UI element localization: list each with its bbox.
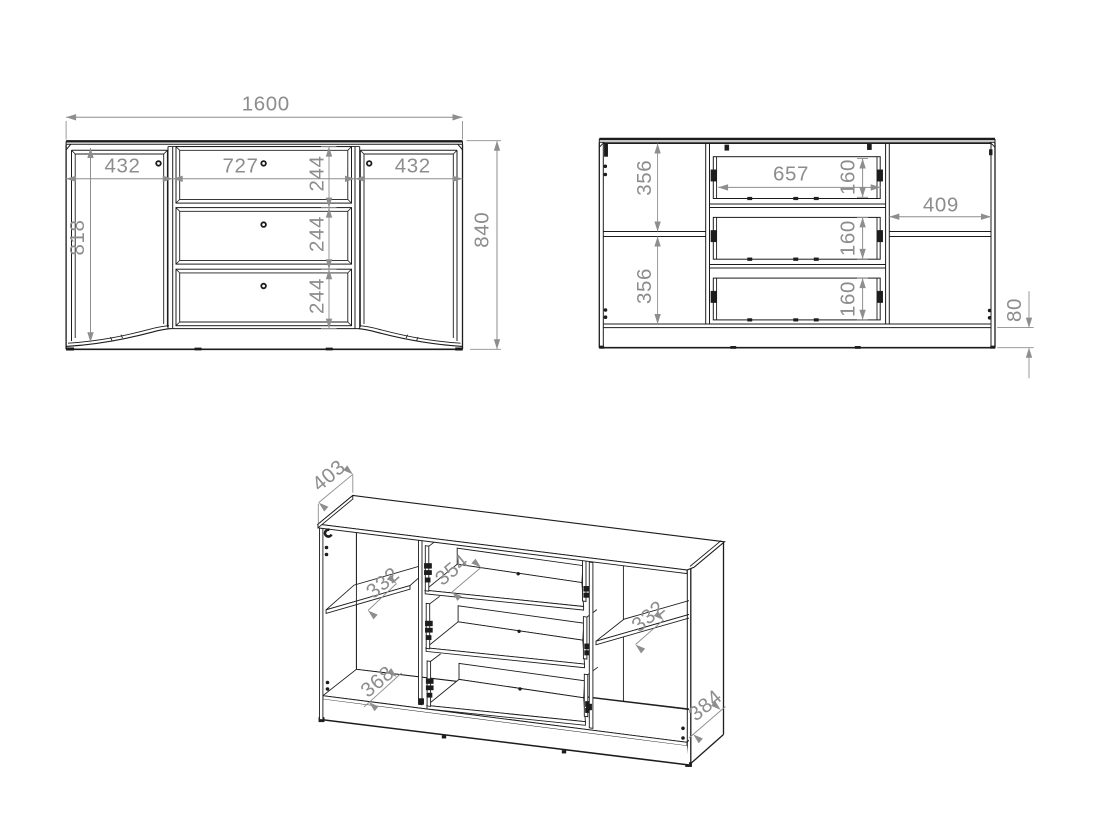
svg-text:244: 244 <box>305 216 328 252</box>
svg-text:80: 80 <box>1003 298 1026 322</box>
svg-text:244: 244 <box>305 155 328 191</box>
svg-text:160: 160 <box>836 281 859 317</box>
svg-text:657: 657 <box>773 162 809 185</box>
svg-text:409: 409 <box>923 194 959 217</box>
svg-text:432: 432 <box>104 154 140 177</box>
svg-text:432: 432 <box>395 154 431 177</box>
svg-text:160: 160 <box>836 220 859 256</box>
svg-text:244: 244 <box>305 278 328 314</box>
svg-text:160: 160 <box>836 159 859 195</box>
svg-text:356: 356 <box>633 268 656 304</box>
svg-text:818: 818 <box>66 219 89 255</box>
svg-text:727: 727 <box>222 154 258 177</box>
svg-text:1600: 1600 <box>242 93 290 116</box>
svg-text:840: 840 <box>470 212 493 248</box>
svg-text:356: 356 <box>633 160 656 196</box>
